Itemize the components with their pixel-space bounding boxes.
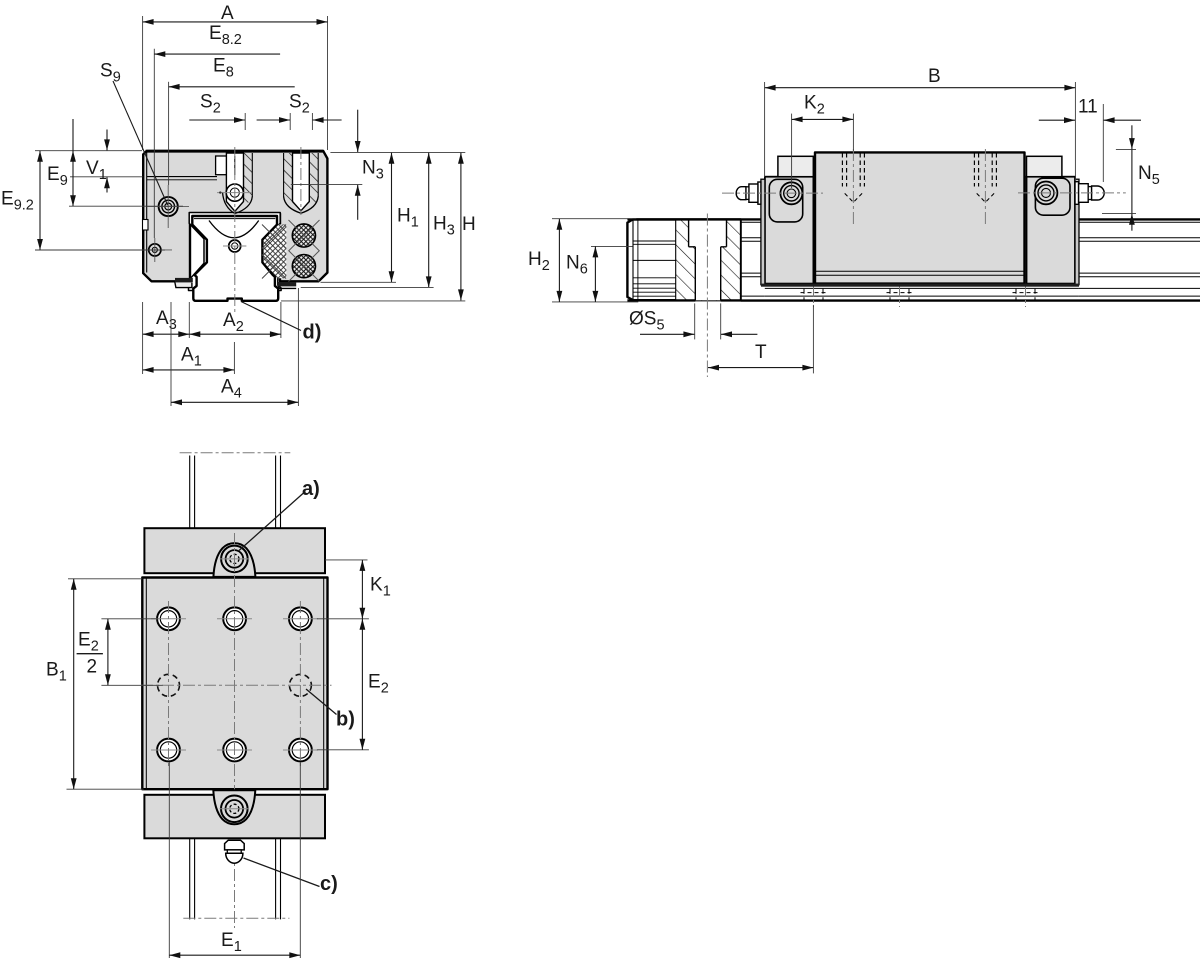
svg-text:A: A <box>221 3 234 24</box>
svg-text:11: 11 <box>1078 97 1098 118</box>
svg-text:b): b) <box>336 709 355 731</box>
svg-text:a): a) <box>302 478 320 500</box>
svg-text:d): d) <box>303 322 322 344</box>
svg-text:c): c) <box>320 873 338 895</box>
svg-text:H: H <box>462 214 476 235</box>
svg-text:B: B <box>928 66 941 87</box>
svg-text:2: 2 <box>87 657 98 678</box>
svg-text:T: T <box>755 342 767 363</box>
